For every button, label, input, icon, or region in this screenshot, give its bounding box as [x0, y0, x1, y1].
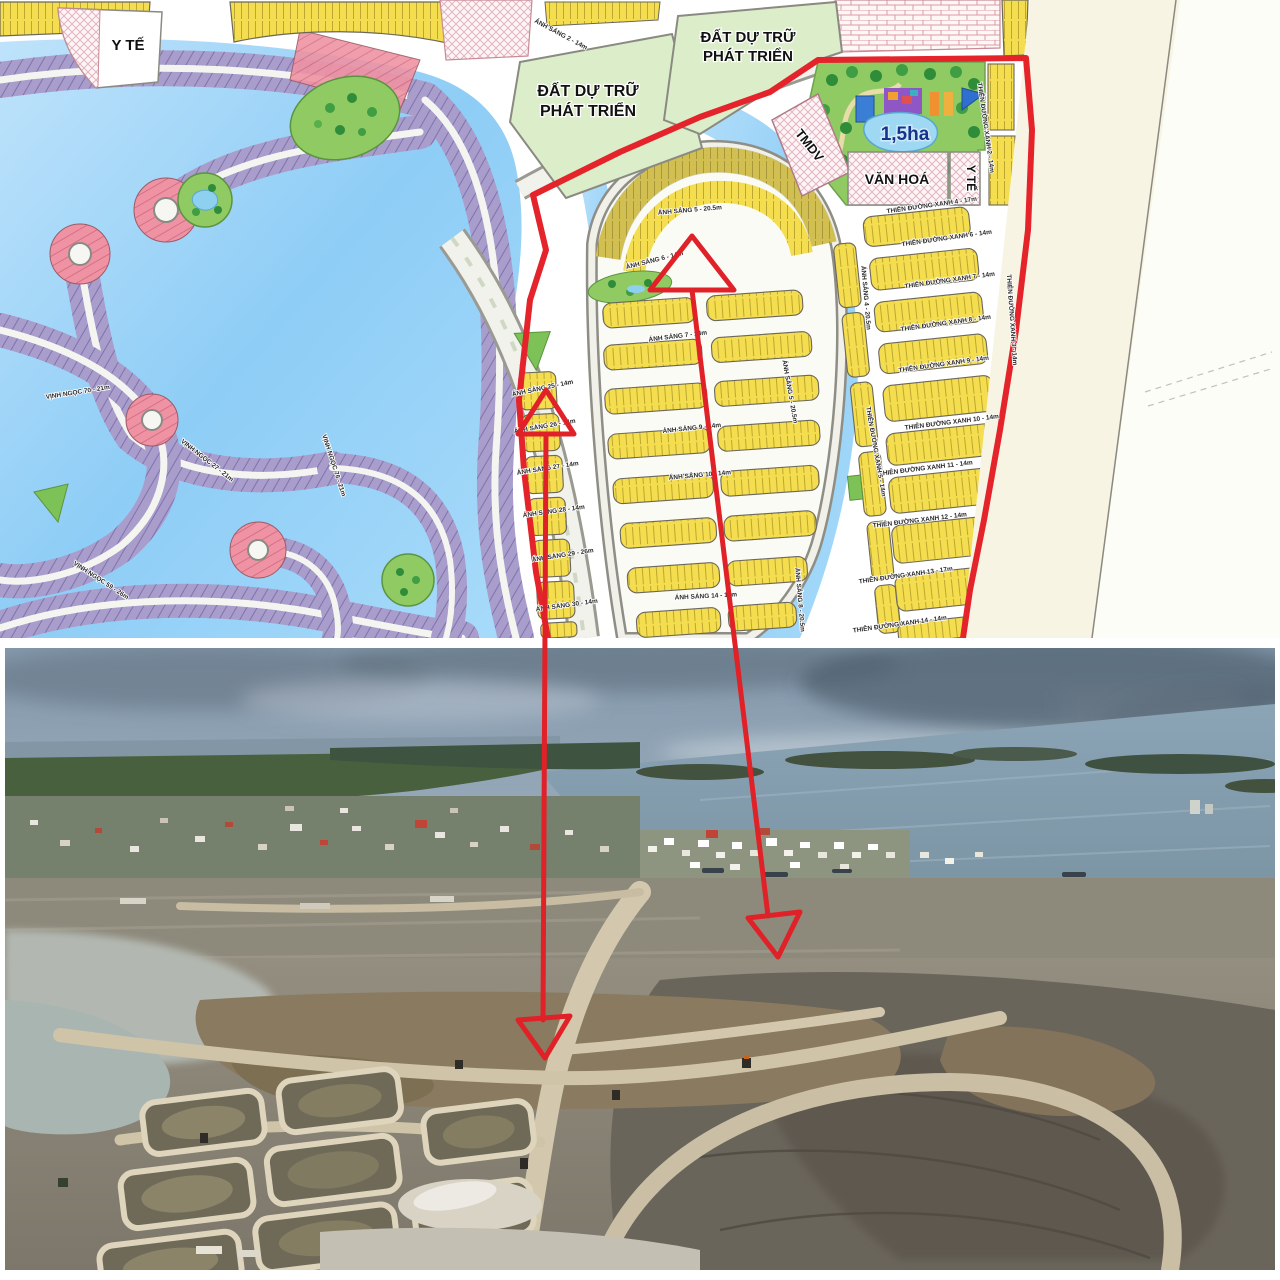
masterplan-map: Y TẾ ĐẤT DỰ TRỮ PHÁT TRIỂN ĐẤT DỰ TRỮ PH…	[0, 0, 1280, 647]
label-yte-topleft: Y TẾ	[111, 37, 144, 54]
aerial-photo	[0, 634, 1280, 1280]
label-reserve2-line2: PHÁT TRIỂN	[703, 47, 793, 65]
label-yte-right: Y TẾ	[964, 165, 979, 191]
scene: Y TẾ ĐẤT DỰ TRỮ PHÁT TRIỂN ĐẤT DỰ TRỮ PH…	[0, 0, 1280, 1280]
composite-image: Y TẾ ĐẤT DỰ TRỮ PHÁT TRIỂN ĐẤT DỰ TRỮ PH…	[0, 0, 1280, 1280]
label-reserve2-line1: ĐẤT DỰ TRỮ	[701, 28, 796, 46]
label-reserve1-line2: PHÁT TRIỂN	[540, 101, 636, 120]
island-block	[586, 146, 842, 639]
label-reserve1-line1: ĐẤT DỰ TRỮ	[537, 80, 639, 100]
label-park-area: 1,5ha	[881, 124, 930, 145]
label-vanhoa: VĂN HOÁ	[865, 171, 930, 187]
